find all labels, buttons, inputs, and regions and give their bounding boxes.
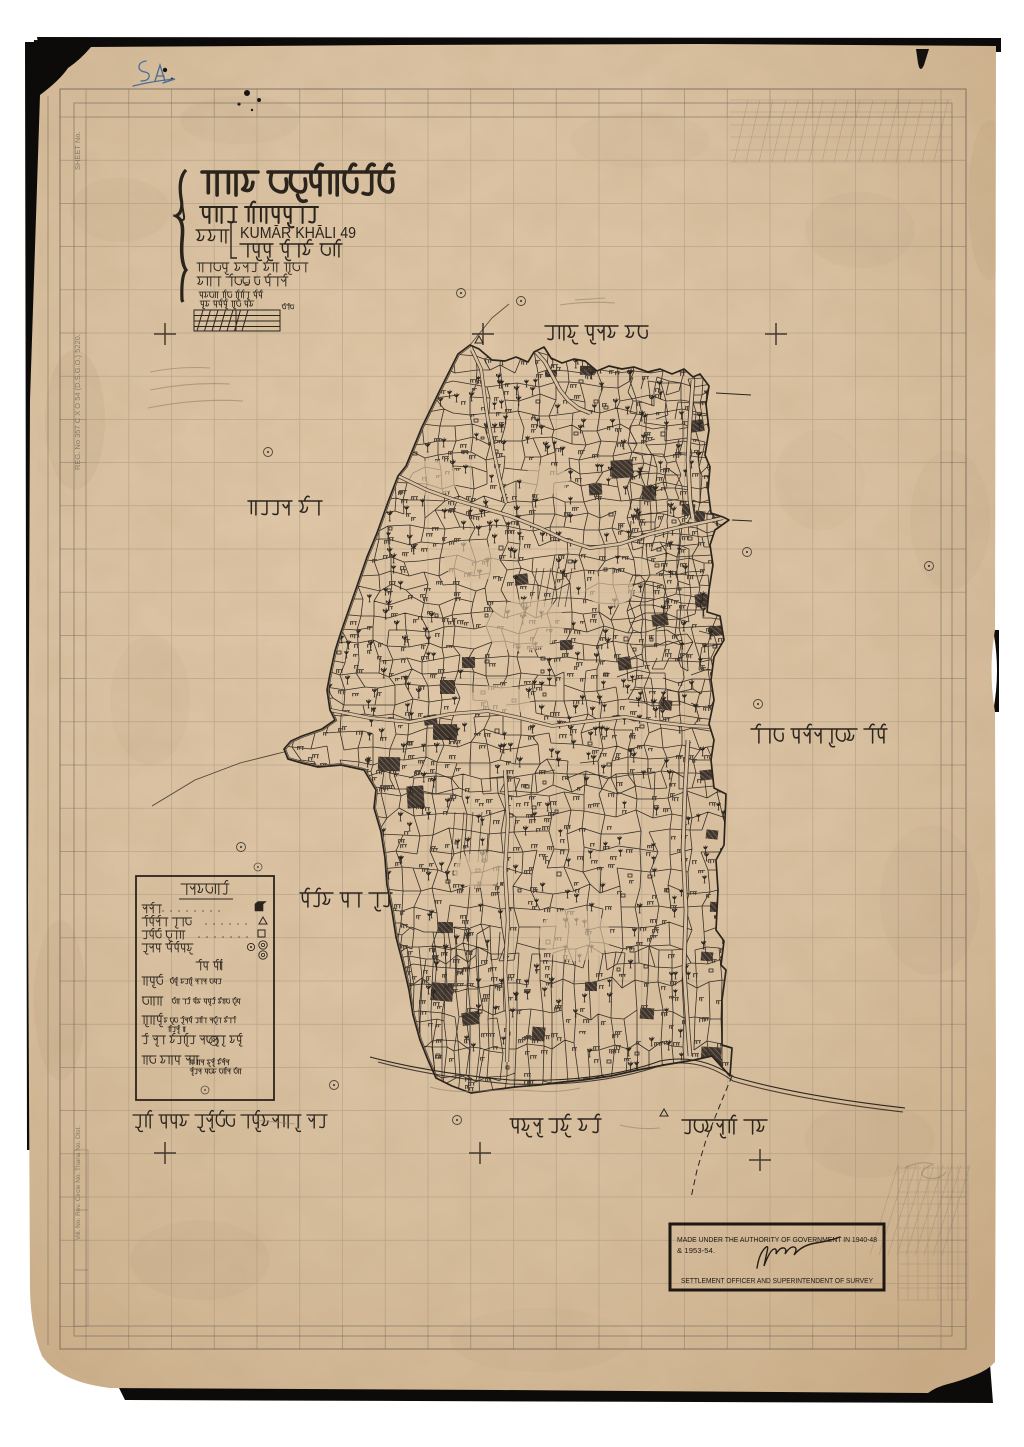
svg-text:SETTLEMENT OFFICER AND SUPERIN: SETTLEMENT OFFICER AND SUPERINTENDENT OF… [681,1276,873,1285]
svg-text:MADE UNDER THE AUTHORITY OF GO: MADE UNDER THE AUTHORITY OF GOVERNMENT I… [677,1235,877,1244]
svg-text:Vill. No. Rev. Circle No. Th: Vill. No. Rev. Circle No. Thana No. Dist… [75,1126,82,1240]
svg-text:REG. No 357 C X O 54 (D.S.G.O.: REG. No 357 C X O 54 (D.S.G.O.) 5220. [73,334,82,470]
svg-text:SHEET No.: SHEET No. [73,131,82,170]
svg-text:=: = [244,279,249,289]
svg-text:& 1953-54.: & 1953-54. [677,1246,715,1255]
